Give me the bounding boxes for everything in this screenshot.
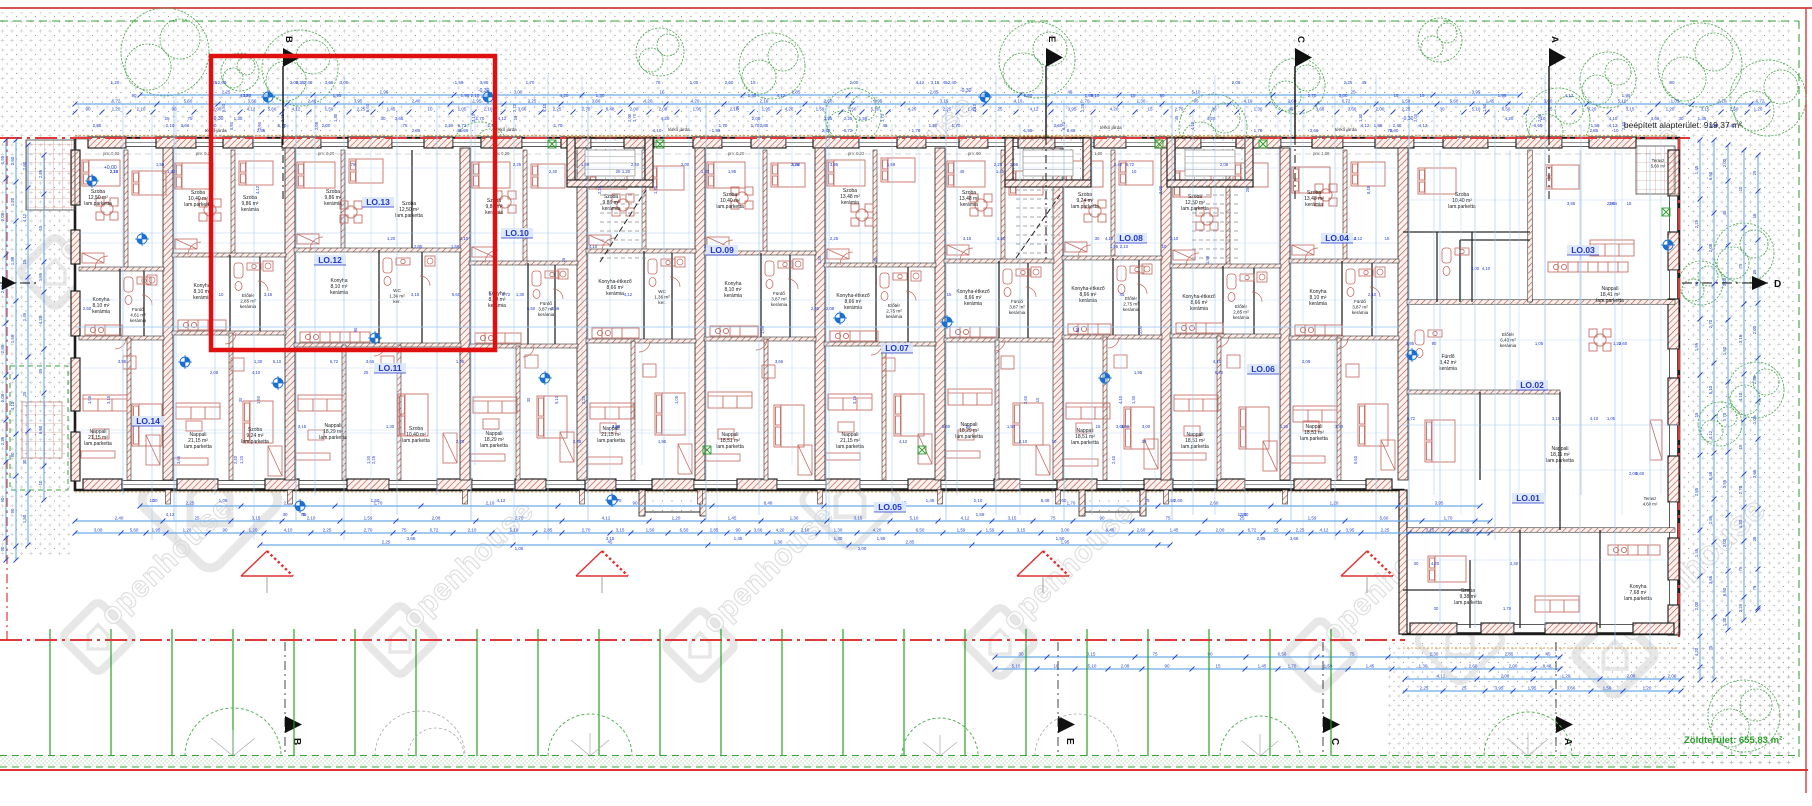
svg-text:2,10: 2,10 xyxy=(974,498,983,503)
svg-text:pm: 90: pm: 90 xyxy=(968,151,981,156)
svg-text:4,20: 4,20 xyxy=(560,93,569,98)
svg-text:5,10: 5,10 xyxy=(871,107,880,112)
svg-text:1,05: 1,05 xyxy=(690,80,699,85)
svg-text:90: 90 xyxy=(222,528,228,533)
svg-text:1,30: 1,30 xyxy=(1254,107,1263,112)
svg-text:90: 90 xyxy=(10,508,15,513)
svg-text:2,25: 2,25 xyxy=(1738,603,1743,612)
svg-text:LO.10: LO.10 xyxy=(505,228,529,238)
svg-text:4,10: 4,10 xyxy=(972,103,977,112)
svg-text:LO.08: LO.08 xyxy=(1119,233,1143,243)
svg-text:5,60: 5,60 xyxy=(792,162,801,167)
svg-text:4,12: 4,12 xyxy=(1708,430,1713,439)
svg-text:45: 45 xyxy=(1361,80,1367,85)
svg-text:1,30: 1,30 xyxy=(254,359,263,364)
svg-text:1,59: 1,59 xyxy=(887,162,896,167)
svg-text:2,40: 2,40 xyxy=(631,162,640,167)
svg-text:4,20: 4,20 xyxy=(1738,519,1743,528)
svg-text:1,30: 1,30 xyxy=(774,540,783,545)
svg-text:6,72: 6,72 xyxy=(502,292,511,297)
svg-text:3,95: 3,95 xyxy=(1435,501,1444,506)
svg-text:3,95: 3,95 xyxy=(1068,107,1077,112)
svg-text:3,00: 3,00 xyxy=(1722,277,1727,286)
svg-text:2,10: 2,10 xyxy=(1019,439,1028,444)
svg-text:2,40: 2,40 xyxy=(1510,561,1519,566)
svg-text:2,25: 2,25 xyxy=(0,436,5,445)
svg-text:1,05: 1,05 xyxy=(458,107,467,112)
svg-text:15: 15 xyxy=(1419,93,1425,98)
svg-text:30: 30 xyxy=(282,512,288,517)
svg-text:1,70: 1,70 xyxy=(1067,501,1076,506)
svg-text:1,70: 1,70 xyxy=(952,123,961,128)
svg-text:30: 30 xyxy=(1211,107,1217,112)
svg-text:1,05: 1,05 xyxy=(1752,415,1757,424)
svg-text:1,30: 1,30 xyxy=(1419,664,1428,669)
svg-text:15: 15 xyxy=(966,424,971,429)
svg-text:2,25: 2,25 xyxy=(513,162,522,167)
svg-text:2,70: 2,70 xyxy=(582,107,591,112)
svg-text:1,45: 1,45 xyxy=(1366,664,1375,669)
svg-text:2,00: 2,00 xyxy=(681,162,690,167)
svg-text:75: 75 xyxy=(351,162,356,167)
svg-text:1,30: 1,30 xyxy=(817,255,822,264)
svg-text:3,66: 3,66 xyxy=(1708,575,1713,584)
svg-text:2,00: 2,00 xyxy=(850,80,859,85)
svg-text:LO.06: LO.06 xyxy=(1251,364,1275,374)
svg-text:2,70: 2,70 xyxy=(1175,107,1184,112)
svg-text:1,20: 1,20 xyxy=(672,516,681,521)
svg-text:1,50: 1,50 xyxy=(1056,536,1065,541)
svg-text:90: 90 xyxy=(1099,516,1105,521)
svg-text:3,15: 3,15 xyxy=(106,395,111,404)
svg-text:8,48: 8,48 xyxy=(606,107,615,112)
svg-text:4,10: 4,10 xyxy=(653,128,662,133)
svg-text:4,20: 4,20 xyxy=(38,315,43,324)
svg-text:1,70: 1,70 xyxy=(1722,412,1727,421)
svg-text:2,85: 2,85 xyxy=(710,528,719,533)
svg-text:4,12: 4,12 xyxy=(1565,93,1574,98)
svg-text:2,40: 2,40 xyxy=(115,516,124,521)
svg-text:1,50: 1,50 xyxy=(1482,103,1487,112)
svg-text:8,48: 8,48 xyxy=(764,501,773,506)
svg-text:2,00: 2,00 xyxy=(322,123,331,128)
svg-text:15: 15 xyxy=(1215,664,1221,669)
svg-text:75: 75 xyxy=(401,528,407,533)
svg-text:30: 30 xyxy=(526,397,531,402)
svg-text:25: 25 xyxy=(735,105,740,110)
svg-text:3,66: 3,66 xyxy=(366,359,375,364)
svg-text:2,85: 2,85 xyxy=(760,123,769,128)
svg-text:3,66: 3,66 xyxy=(325,80,334,85)
svg-text:15: 15 xyxy=(1393,93,1399,98)
svg-text:5,10: 5,10 xyxy=(510,528,519,533)
svg-text:8,48: 8,48 xyxy=(1366,185,1371,194)
svg-text:3,66: 3,66 xyxy=(407,536,416,541)
svg-text:3,95: 3,95 xyxy=(118,359,127,364)
svg-text:3,15: 3,15 xyxy=(616,528,625,533)
svg-text:pm: 1,00: pm: 1,00 xyxy=(1313,151,1330,156)
svg-text:1,30: 1,30 xyxy=(834,536,843,541)
svg-text:15: 15 xyxy=(1130,93,1136,98)
svg-text:1,30: 1,30 xyxy=(1358,113,1363,122)
svg-text:5,60: 5,60 xyxy=(1353,455,1358,464)
svg-text:1,45: 1,45 xyxy=(1486,99,1495,104)
svg-text:2,85: 2,85 xyxy=(906,540,915,545)
svg-text:1,59: 1,59 xyxy=(325,107,334,112)
svg-text:2,00: 2,00 xyxy=(1413,113,1418,122)
svg-text:2,40: 2,40 xyxy=(822,128,831,133)
svg-text:4,12: 4,12 xyxy=(240,93,249,98)
svg-text:1,05: 1,05 xyxy=(87,395,92,404)
svg-text:25: 25 xyxy=(1461,686,1467,691)
svg-text:2,85: 2,85 xyxy=(1694,487,1699,496)
svg-text:2,25: 2,25 xyxy=(581,395,586,404)
svg-text:2,10: 2,10 xyxy=(1170,236,1179,241)
svg-text:6,72: 6,72 xyxy=(1215,370,1224,375)
svg-text:4,10: 4,10 xyxy=(1105,236,1114,241)
svg-text:4,10: 4,10 xyxy=(1590,416,1599,421)
svg-text:2,25: 2,25 xyxy=(1694,219,1699,228)
svg-text:1,30: 1,30 xyxy=(596,93,605,98)
svg-text:5,60: 5,60 xyxy=(452,292,461,297)
svg-text:3,66: 3,66 xyxy=(1290,536,1299,541)
svg-text:4,10: 4,10 xyxy=(1244,99,1253,104)
svg-text:2,25: 2,25 xyxy=(1080,103,1085,112)
svg-text:4,12: 4,12 xyxy=(1361,123,1370,128)
svg-text:5,60: 5,60 xyxy=(130,528,139,533)
svg-text:30: 30 xyxy=(1018,652,1024,657)
svg-text:1,95: 1,95 xyxy=(877,536,886,541)
svg-text:30: 30 xyxy=(22,459,27,464)
svg-text:15: 15 xyxy=(1096,424,1101,429)
svg-text:25: 25 xyxy=(364,370,369,375)
svg-text:8,48: 8,48 xyxy=(1708,471,1713,480)
svg-text:1,30: 1,30 xyxy=(386,424,395,429)
svg-text:15: 15 xyxy=(1627,201,1632,206)
svg-text:térkő járda: térkő járda xyxy=(205,128,227,133)
svg-text:90: 90 xyxy=(1159,93,1165,98)
svg-text:25: 25 xyxy=(38,368,43,373)
svg-text:1,95: 1,95 xyxy=(728,169,737,174)
svg-text:6,72: 6,72 xyxy=(1248,528,1257,533)
svg-text:2,08: 2,08 xyxy=(659,107,668,112)
svg-text:15: 15 xyxy=(947,292,952,297)
svg-text:1,59: 1,59 xyxy=(451,244,460,249)
svg-text:1,59: 1,59 xyxy=(364,516,373,521)
svg-text:6,72: 6,72 xyxy=(1061,121,1066,130)
svg-text:2,60: 2,60 xyxy=(1210,501,1219,506)
svg-text:5,10: 5,10 xyxy=(1012,664,1021,669)
svg-text:1,70: 1,70 xyxy=(1288,664,1297,669)
svg-text:2,60: 2,60 xyxy=(257,121,262,130)
svg-text:2,08: 2,08 xyxy=(573,439,582,444)
svg-text:3,15: 3,15 xyxy=(252,516,261,521)
svg-text:2,25: 2,25 xyxy=(528,99,537,104)
svg-text:1,45: 1,45 xyxy=(387,107,396,112)
svg-text:2,25: 2,25 xyxy=(844,116,853,121)
svg-text:2,25: 2,25 xyxy=(1420,686,1429,691)
svg-text:2,85: 2,85 xyxy=(412,128,421,133)
svg-text:4,10: 4,10 xyxy=(10,401,15,410)
svg-text:3,66: 3,66 xyxy=(1316,107,1325,112)
svg-text:2,40: 2,40 xyxy=(1390,128,1399,133)
svg-text:1,30: 1,30 xyxy=(1722,617,1727,626)
svg-text:3,15: 3,15 xyxy=(264,292,273,297)
svg-text:1,45: 1,45 xyxy=(996,169,1005,174)
svg-text:3,66: 3,66 xyxy=(1348,107,1357,112)
svg-text:10: 10 xyxy=(1035,397,1040,402)
svg-text:6,50: 6,50 xyxy=(1278,652,1287,657)
svg-text:LO.02: LO.02 xyxy=(1520,380,1544,390)
svg-text:2,40: 2,40 xyxy=(412,99,421,104)
svg-text:3,66: 3,66 xyxy=(176,455,181,464)
svg-text:2,25: 2,25 xyxy=(323,528,332,533)
svg-text:3,00: 3,00 xyxy=(1142,424,1151,429)
svg-text:4,10: 4,10 xyxy=(1213,359,1222,364)
svg-text:LO.12: LO.12 xyxy=(318,255,342,265)
svg-text:2,85: 2,85 xyxy=(930,90,939,95)
svg-text:3,15: 3,15 xyxy=(940,99,949,104)
svg-text:1,45: 1,45 xyxy=(926,498,935,503)
svg-text:1,95: 1,95 xyxy=(0,155,5,164)
svg-text:90: 90 xyxy=(131,93,137,98)
svg-text:4,20: 4,20 xyxy=(873,528,882,533)
svg-text:2,25: 2,25 xyxy=(1381,528,1390,533)
svg-text:90: 90 xyxy=(1164,664,1170,669)
svg-text:Konyha8,10 m²kerámia: Konyha8,10 m²kerámia xyxy=(330,278,348,296)
svg-text:2,60: 2,60 xyxy=(725,80,734,85)
svg-text:15: 15 xyxy=(1147,107,1153,112)
svg-text:5,60: 5,60 xyxy=(184,99,193,104)
svg-text:2,08: 2,08 xyxy=(314,121,319,130)
svg-text:1,95: 1,95 xyxy=(1528,686,1537,691)
svg-text:4,20: 4,20 xyxy=(1588,107,1597,112)
svg-text:6,50: 6,50 xyxy=(1708,171,1713,180)
svg-text:2,25: 2,25 xyxy=(1402,107,1411,112)
svg-text:3,66: 3,66 xyxy=(1752,469,1757,478)
svg-text:3,66: 3,66 xyxy=(518,107,527,112)
svg-text:C: C xyxy=(1295,36,1306,43)
svg-text:1,05: 1,05 xyxy=(674,395,679,404)
svg-text:45: 45 xyxy=(960,169,965,174)
svg-text:1,50: 1,50 xyxy=(848,107,857,112)
svg-text:90: 90 xyxy=(0,497,5,502)
svg-text:2,08: 2,08 xyxy=(432,516,441,521)
svg-text:1,45: 1,45 xyxy=(1170,528,1179,533)
svg-text:1,20: 1,20 xyxy=(112,107,121,112)
svg-text:10: 10 xyxy=(1162,244,1167,249)
svg-text:3,66: 3,66 xyxy=(248,99,257,104)
svg-text:LO.13: LO.13 xyxy=(366,197,390,207)
svg-text:1,50: 1,50 xyxy=(929,123,938,128)
svg-text:2,60: 2,60 xyxy=(1137,528,1146,533)
svg-text:Fürdő3,42 m²kerámia: Fürdő3,42 m²kerámia xyxy=(1439,354,1457,372)
svg-text:2,25: 2,25 xyxy=(943,107,952,112)
svg-text:2,10: 2,10 xyxy=(1368,292,1377,297)
svg-text:2,60: 2,60 xyxy=(1469,664,1478,669)
svg-text:LO.03: LO.03 xyxy=(1571,245,1595,255)
svg-text:3,00: 3,00 xyxy=(858,546,867,551)
svg-text:1,95: 1,95 xyxy=(1374,123,1383,128)
svg-text:25: 25 xyxy=(1245,187,1250,192)
svg-text:3,95: 3,95 xyxy=(354,99,363,104)
svg-text:30: 30 xyxy=(238,397,243,402)
svg-text:30: 30 xyxy=(152,498,158,503)
svg-text:1,95: 1,95 xyxy=(1134,370,1143,375)
svg-text:1,05: 1,05 xyxy=(456,359,465,364)
svg-text:45: 45 xyxy=(1067,90,1073,95)
svg-text:2,10: 2,10 xyxy=(137,107,146,112)
svg-text:3,00: 3,00 xyxy=(290,80,299,85)
svg-text:6,50: 6,50 xyxy=(1534,123,1543,128)
svg-text:1,95: 1,95 xyxy=(1622,93,1631,98)
svg-text:1,05: 1,05 xyxy=(1535,341,1544,346)
svg-text:3,15: 3,15 xyxy=(854,516,863,521)
svg-text:75: 75 xyxy=(1708,645,1713,650)
svg-text:2,85: 2,85 xyxy=(792,90,801,95)
svg-text:2,25: 2,25 xyxy=(371,455,376,464)
svg-text:5,60: 5,60 xyxy=(268,107,277,112)
svg-text:1,95: 1,95 xyxy=(38,272,43,281)
svg-text:LO.05: LO.05 xyxy=(878,502,902,512)
svg-text:2,08: 2,08 xyxy=(1220,162,1229,167)
svg-text:2,40: 2,40 xyxy=(308,99,317,104)
svg-text:1,45: 1,45 xyxy=(748,93,757,98)
svg-text:3,66: 3,66 xyxy=(181,123,190,128)
svg-text:10: 10 xyxy=(219,292,224,297)
svg-text:3,95: 3,95 xyxy=(1722,479,1727,488)
svg-text:25: 25 xyxy=(1350,90,1356,95)
svg-text:2,70: 2,70 xyxy=(364,528,373,533)
svg-text:1,70: 1,70 xyxy=(1254,128,1263,133)
svg-text:6,72: 6,72 xyxy=(844,128,853,133)
svg-text:2,08: 2,08 xyxy=(0,393,5,402)
svg-text:1,20: 1,20 xyxy=(249,528,258,533)
svg-text:1,70: 1,70 xyxy=(653,185,658,194)
svg-text:2,70: 2,70 xyxy=(582,528,591,533)
svg-text:-0,30: -0,30 xyxy=(960,88,972,94)
svg-text:5,10: 5,10 xyxy=(1088,664,1097,669)
svg-text:2,60: 2,60 xyxy=(824,99,833,104)
svg-text:1,30: 1,30 xyxy=(516,292,525,297)
svg-text:15: 15 xyxy=(659,90,665,95)
svg-text:2,00: 2,00 xyxy=(1722,538,1727,547)
svg-text:LO.14: LO.14 xyxy=(136,416,160,426)
svg-text:90: 90 xyxy=(1432,341,1437,346)
svg-text:75: 75 xyxy=(1165,516,1171,521)
svg-text:3,66: 3,66 xyxy=(612,424,621,429)
svg-text:2,60: 2,60 xyxy=(1537,113,1542,122)
svg-text:1,45: 1,45 xyxy=(728,516,737,521)
svg-text:45: 45 xyxy=(1288,107,1294,112)
svg-text:3,15: 3,15 xyxy=(1426,528,1435,533)
svg-text:30: 30 xyxy=(1434,606,1439,611)
svg-text:1,20: 1,20 xyxy=(701,169,710,174)
svg-text:15: 15 xyxy=(1694,412,1699,417)
svg-text:15: 15 xyxy=(1738,444,1743,449)
svg-text:2,00: 2,00 xyxy=(752,116,761,121)
svg-text:3,15: 3,15 xyxy=(1087,652,1096,657)
svg-text:2,40: 2,40 xyxy=(549,169,558,174)
svg-text:6,72: 6,72 xyxy=(430,528,439,533)
svg-text:1,20: 1,20 xyxy=(622,169,631,174)
svg-text:pm: 0,02: pm: 0,02 xyxy=(103,151,120,156)
svg-text:45: 45 xyxy=(1722,210,1727,215)
svg-text:2,08: 2,08 xyxy=(1121,664,1130,669)
svg-text:2,40: 2,40 xyxy=(1393,123,1402,128)
svg-text:1,70: 1,70 xyxy=(554,123,563,128)
svg-text:3,15: 3,15 xyxy=(606,536,615,541)
svg-text:90: 90 xyxy=(171,107,177,112)
svg-text:4,12: 4,12 xyxy=(22,213,27,222)
svg-text:4,12: 4,12 xyxy=(1419,123,1428,128)
svg-text:75: 75 xyxy=(1738,263,1743,268)
svg-text:1,20: 1,20 xyxy=(111,80,120,85)
svg-text:2,70: 2,70 xyxy=(456,439,465,444)
svg-text:10: 10 xyxy=(1613,128,1619,133)
svg-text:2,25: 2,25 xyxy=(994,162,1003,167)
svg-text:1,95: 1,95 xyxy=(461,93,470,98)
svg-text:75: 75 xyxy=(1152,652,1158,657)
svg-text:45: 45 xyxy=(301,512,307,517)
svg-text:2,60: 2,60 xyxy=(1023,395,1028,404)
svg-text:Terasz5,60 m²: Terasz5,60 m² xyxy=(1651,158,1666,168)
svg-text:6,50: 6,50 xyxy=(916,528,925,533)
svg-text:4,12: 4,12 xyxy=(1437,674,1446,679)
svg-text:1,45: 1,45 xyxy=(1694,548,1699,557)
svg-text:1,20: 1,20 xyxy=(239,455,244,464)
svg-text:2,60: 2,60 xyxy=(218,80,227,85)
svg-text:2,10: 2,10 xyxy=(484,107,493,112)
svg-text:15: 15 xyxy=(22,259,27,264)
svg-text:6,50: 6,50 xyxy=(527,306,536,311)
svg-text:2,25: 2,25 xyxy=(445,123,454,128)
svg-text:2,08: 2,08 xyxy=(826,306,835,311)
svg-text:1,30: 1,30 xyxy=(1137,99,1146,104)
svg-text:1,59: 1,59 xyxy=(10,256,15,265)
svg-text:1,20: 1,20 xyxy=(183,528,192,533)
svg-text:6,50: 6,50 xyxy=(680,528,689,533)
svg-text:2,70: 2,70 xyxy=(515,516,524,521)
svg-text:1,59: 1,59 xyxy=(10,334,15,343)
svg-text:2,85: 2,85 xyxy=(0,344,5,353)
svg-text:3,66: 3,66 xyxy=(775,359,784,364)
svg-text:1,95: 1,95 xyxy=(333,93,342,98)
svg-text:1,59: 1,59 xyxy=(957,528,966,533)
svg-text:1,70: 1,70 xyxy=(526,80,535,85)
svg-text:4,20: 4,20 xyxy=(997,236,1006,241)
svg-text:90: 90 xyxy=(735,528,741,533)
svg-text:1,95: 1,95 xyxy=(658,439,667,444)
svg-text:pm: 0,20: pm: 0,20 xyxy=(728,151,745,156)
svg-text:90: 90 xyxy=(1075,327,1080,332)
svg-text:térkő járda: térkő járda xyxy=(495,127,517,132)
svg-text:30: 30 xyxy=(1439,107,1445,112)
svg-text:2,10: 2,10 xyxy=(166,123,175,128)
svg-text:25: 25 xyxy=(1752,536,1757,541)
svg-text:25: 25 xyxy=(997,107,1003,112)
svg-text:3,15: 3,15 xyxy=(1008,516,1017,521)
svg-text:A: A xyxy=(1562,738,1573,745)
svg-text:1,95: 1,95 xyxy=(712,128,721,133)
svg-text:4,20: 4,20 xyxy=(785,107,794,112)
svg-text:3,95: 3,95 xyxy=(830,162,839,167)
svg-text:3,15: 3,15 xyxy=(298,424,307,429)
svg-text:1,59: 1,59 xyxy=(859,116,868,121)
svg-text:4,20: 4,20 xyxy=(644,99,653,104)
svg-text:2,08: 2,08 xyxy=(1232,80,1241,85)
svg-text:75: 75 xyxy=(187,116,193,121)
